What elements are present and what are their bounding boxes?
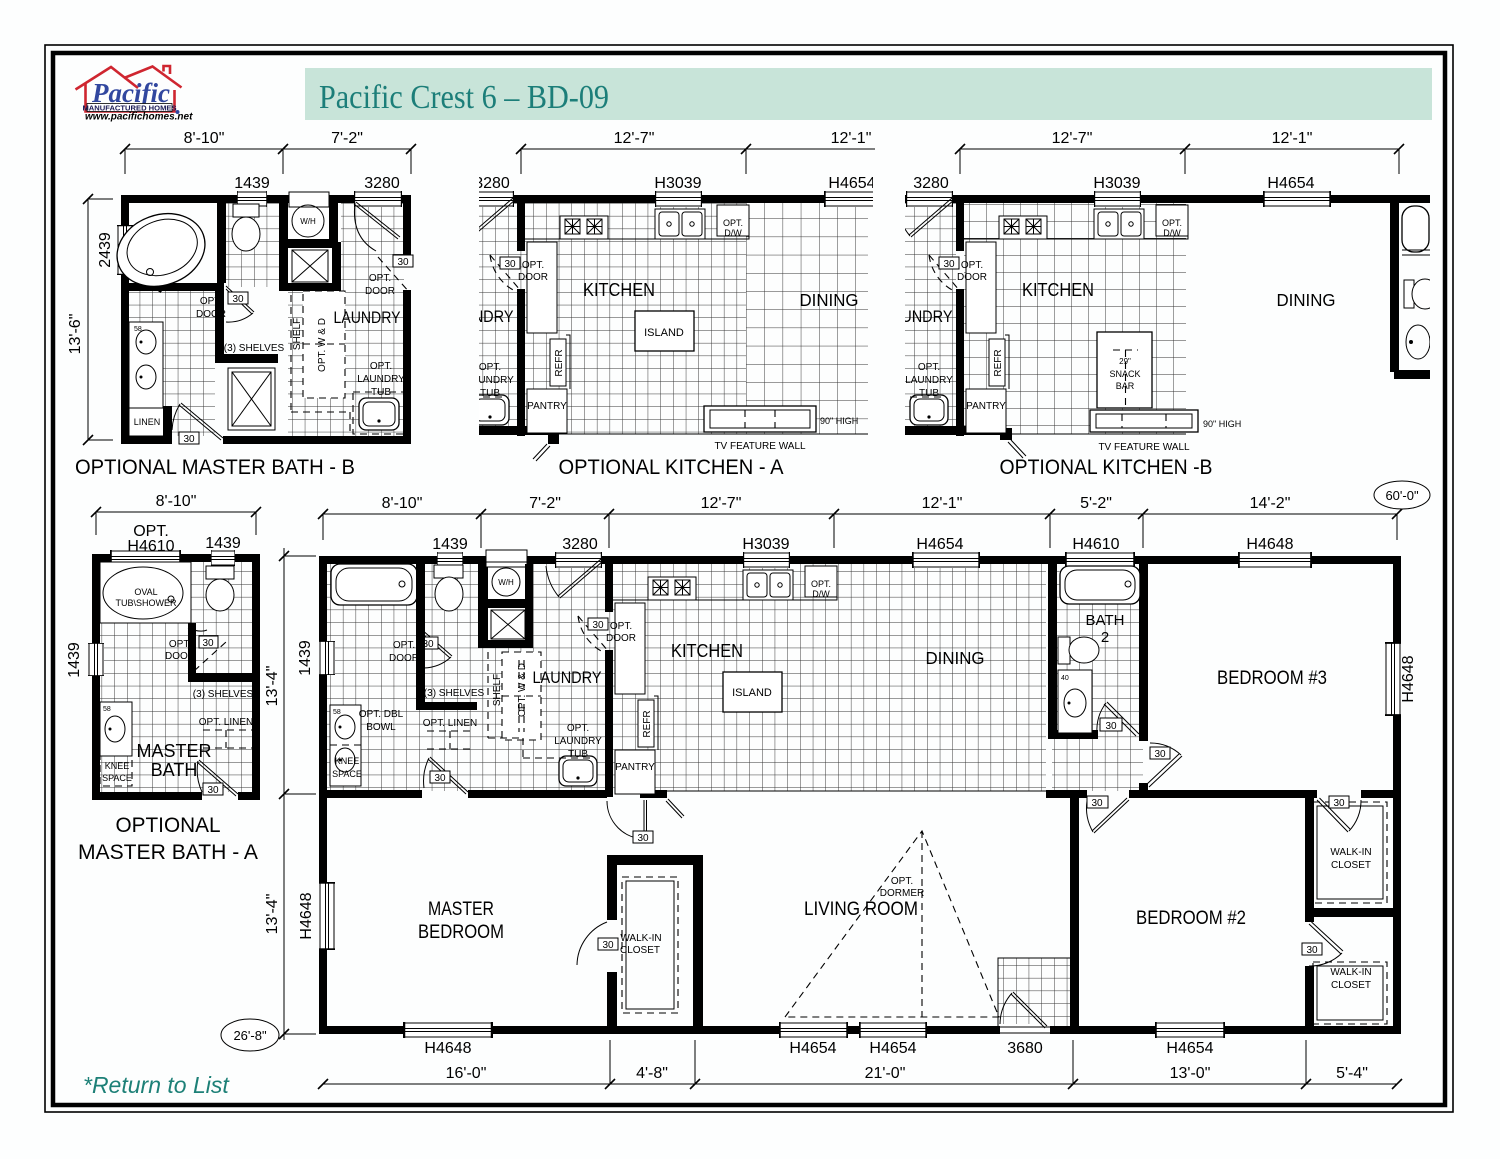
- svg-text:TUB\SHOWER: TUB\SHOWER: [115, 598, 177, 608]
- svg-text:BEDROOM: BEDROOM: [418, 921, 504, 943]
- svg-text:BATH: BATH: [1086, 612, 1125, 629]
- svg-text:MASTER: MASTER: [428, 898, 494, 920]
- svg-text:26'-8": 26'-8": [233, 1028, 267, 1043]
- svg-text:SPACE: SPACE: [102, 773, 132, 783]
- svg-text:*Return to List: *Return to List: [83, 1072, 230, 1098]
- svg-text:(3) SHELVES: (3) SHELVES: [224, 343, 285, 354]
- svg-text:30: 30: [637, 833, 649, 844]
- svg-text:OPTIONAL MASTER BATH - B: OPTIONAL MASTER BATH - B: [75, 455, 355, 479]
- svg-text:H4648: H4648: [424, 1040, 471, 1057]
- svg-text:13'-4": 13'-4": [264, 894, 281, 935]
- svg-text:8'-10": 8'-10": [382, 495, 423, 512]
- svg-text:8'-10": 8'-10": [156, 493, 197, 510]
- svg-text:1439: 1439: [432, 536, 468, 553]
- svg-text:30: 30: [397, 257, 409, 268]
- svg-text:ISLAND: ISLAND: [644, 327, 684, 339]
- svg-text:3280: 3280: [364, 175, 400, 192]
- svg-text:58: 58: [134, 326, 142, 333]
- svg-text:LAUNDRY: LAUNDRY: [357, 374, 405, 385]
- svg-text:DOOR: DOOR: [165, 651, 195, 662]
- svg-text:OPT.: OPT.: [369, 273, 391, 284]
- svg-text:MASTER BATH - A: MASTER BATH - A: [78, 840, 259, 864]
- svg-text:60'-0": 60'-0": [1385, 488, 1419, 503]
- svg-text:4'-8": 4'-8": [636, 1065, 668, 1082]
- svg-text:W/H: W/H: [498, 578, 514, 587]
- svg-text:Pacific Crest 6 – BD-09: Pacific Crest 6 – BD-09: [319, 79, 609, 116]
- svg-text:14'-2": 14'-2": [1250, 495, 1291, 512]
- svg-text:8'-10": 8'-10": [184, 130, 225, 147]
- svg-text:OPTIONAL: OPTIONAL: [116, 813, 221, 837]
- svg-text:WALK-IN: WALK-IN: [620, 933, 661, 944]
- svg-text:16'-0": 16'-0": [446, 1065, 487, 1082]
- svg-text:OPT.: OPT.: [393, 640, 415, 651]
- svg-text:W/H: W/H: [300, 217, 316, 226]
- svg-text:H4648: H4648: [1400, 655, 1417, 702]
- svg-text:H4610: H4610: [127, 538, 174, 555]
- svg-text:30: 30: [202, 638, 214, 649]
- svg-text:29": 29": [1119, 357, 1131, 366]
- svg-text:CLOSET: CLOSET: [1331, 980, 1371, 991]
- svg-text:58: 58: [333, 709, 341, 716]
- svg-text:H4648: H4648: [1246, 536, 1293, 553]
- svg-text:12'-7": 12'-7": [614, 130, 655, 147]
- svg-text:30: 30: [1333, 798, 1345, 809]
- svg-text:OPT.: OPT.: [891, 876, 913, 887]
- svg-text:DOOR: DOOR: [389, 653, 419, 664]
- svg-text:LAUNDRY: LAUNDRY: [334, 309, 401, 327]
- svg-text:12'-1": 12'-1": [1272, 130, 1313, 147]
- svg-text:21'-0": 21'-0": [865, 1065, 906, 1082]
- svg-text:H4654: H4654: [1166, 1040, 1213, 1057]
- svg-text:30: 30: [602, 940, 614, 951]
- svg-text:ISLAND: ISLAND: [732, 687, 772, 699]
- svg-text:BEDROOM #2: BEDROOM #2: [1136, 907, 1246, 929]
- svg-text:KNEE: KNEE: [105, 761, 130, 771]
- svg-text:2439: 2439: [97, 232, 114, 268]
- svg-text:30: 30: [1154, 749, 1166, 760]
- svg-text:TV FEATURE WALL: TV FEATURE WALL: [1098, 442, 1190, 453]
- svg-text:2: 2: [1101, 629, 1109, 646]
- svg-text:OPT. LINEN: OPT. LINEN: [423, 718, 477, 729]
- svg-text:H4610: H4610: [1072, 536, 1119, 553]
- svg-text:LIVING ROOM: LIVING ROOM: [804, 898, 918, 920]
- svg-text:12'-7": 12'-7": [1052, 130, 1093, 147]
- svg-text:MASTER: MASTER: [136, 741, 211, 761]
- svg-text:TV FEATURE WALL: TV FEATURE WALL: [714, 441, 806, 452]
- svg-text:13'-0": 13'-0": [1170, 1065, 1211, 1082]
- svg-text:DINING: DINING: [1277, 290, 1336, 310]
- svg-text:3680: 3680: [1007, 1040, 1043, 1057]
- svg-text:1439: 1439: [205, 535, 241, 552]
- svg-text:DINING: DINING: [800, 290, 859, 310]
- svg-text:OPT. DBL: OPT. DBL: [359, 709, 404, 720]
- svg-text:WALK-IN: WALK-IN: [1330, 847, 1371, 858]
- svg-text:DINING: DINING: [926, 648, 985, 668]
- svg-text:12'-7": 12'-7": [701, 495, 742, 512]
- svg-text:SPACE: SPACE: [332, 769, 362, 779]
- svg-text:(3) SHELVES: (3) SHELVES: [424, 688, 485, 699]
- svg-text:5'-2": 5'-2": [1080, 495, 1112, 512]
- svg-text:OPT.: OPT.: [370, 361, 392, 372]
- svg-text:(3) SHELVES: (3) SHELVES: [193, 689, 254, 700]
- svg-text:30: 30: [1091, 798, 1103, 809]
- svg-text:12'-1": 12'-1": [831, 130, 872, 147]
- svg-text:H4648: H4648: [298, 892, 315, 939]
- svg-text:OPTIONAL KITCHEN - A: OPTIONAL KITCHEN - A: [559, 455, 785, 479]
- svg-text:1439: 1439: [297, 640, 314, 676]
- svg-text:LINEN: LINEN: [134, 417, 161, 427]
- svg-text:40: 40: [1061, 675, 1069, 682]
- svg-text:30: 30: [183, 434, 195, 445]
- svg-text:30: 30: [232, 294, 244, 305]
- svg-text:5'-4": 5'-4": [1336, 1065, 1368, 1082]
- svg-text:BOWL: BOWL: [366, 722, 396, 733]
- svg-text:BATH: BATH: [151, 760, 198, 780]
- svg-text:H4654: H4654: [869, 1040, 916, 1057]
- svg-text:12'-1": 12'-1": [922, 495, 963, 512]
- svg-text:90" HIGH: 90" HIGH: [1203, 419, 1241, 429]
- svg-text:DOOR: DOOR: [365, 286, 395, 297]
- svg-text:1439: 1439: [66, 642, 83, 678]
- svg-text:13'-4": 13'-4": [264, 666, 281, 707]
- svg-text:SHELF: SHELF: [292, 318, 303, 350]
- svg-text:OVAL: OVAL: [134, 587, 157, 597]
- svg-text:H4654: H4654: [789, 1040, 836, 1057]
- svg-text:CLOSET: CLOSET: [1331, 860, 1371, 871]
- svg-text:30: 30: [207, 785, 219, 796]
- svg-text:BEDROOM #3: BEDROOM #3: [1217, 667, 1327, 689]
- svg-text:58: 58: [103, 706, 111, 713]
- svg-text:13'-6": 13'-6": [67, 314, 84, 355]
- svg-text:BAR: BAR: [1116, 381, 1135, 391]
- svg-text:OPT. LINEN: OPT. LINEN: [199, 717, 253, 728]
- svg-text:7'-2": 7'-2": [331, 130, 363, 147]
- svg-text:30: 30: [1306, 945, 1318, 956]
- svg-text:30: 30: [434, 773, 446, 784]
- svg-text:30: 30: [1105, 721, 1117, 732]
- svg-text:OPTIONAL KITCHEN -B: OPTIONAL KITCHEN -B: [1000, 455, 1213, 479]
- svg-text:90" HIGH: 90" HIGH: [820, 416, 858, 426]
- svg-text:KNEE: KNEE: [335, 756, 360, 766]
- svg-text:CLOSET: CLOSET: [620, 945, 660, 956]
- svg-text:OPT.: OPT.: [169, 639, 191, 650]
- svg-text:SNACK: SNACK: [1109, 369, 1140, 379]
- svg-text:1439: 1439: [234, 175, 270, 192]
- svg-text:OPT. W & D: OPT. W & D: [317, 318, 328, 372]
- svg-text:WALK-IN: WALK-IN: [1330, 967, 1371, 978]
- svg-text:7'-2": 7'-2": [529, 495, 561, 512]
